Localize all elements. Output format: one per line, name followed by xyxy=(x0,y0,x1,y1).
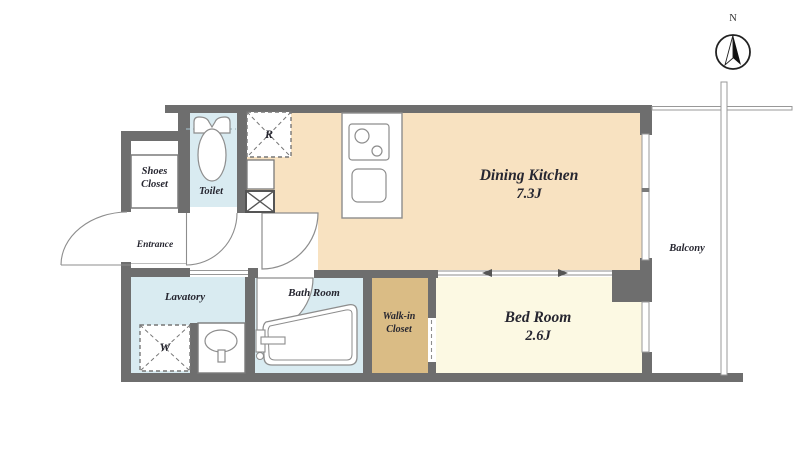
dining-kitchen-label: Dining Kitchen 7.3J xyxy=(429,166,629,204)
wall-corner-block-a xyxy=(640,258,652,302)
kitchen-sink xyxy=(352,169,386,202)
wall-left-upper xyxy=(121,131,131,212)
shoes-closet-label: Shoes Closet xyxy=(131,165,178,191)
wall-corner-block-b xyxy=(612,270,640,302)
basin-tap xyxy=(218,350,225,362)
toilet-label: Toilet xyxy=(185,186,237,199)
bed-room-name: Bed Room xyxy=(448,308,628,327)
wall-bedroom-right-stub xyxy=(642,352,652,373)
windows xyxy=(642,82,793,375)
storage-counter-box xyxy=(247,160,274,189)
wall-dk-right-stub xyxy=(640,105,652,135)
sliding-arrow-left xyxy=(482,269,492,277)
lavatory-opening xyxy=(190,268,248,277)
dk-door-swing xyxy=(262,213,318,269)
bath-room-label: Bath Room xyxy=(262,287,366,300)
wall-wic-bedroom-upper xyxy=(428,277,436,318)
window-mullion xyxy=(642,188,650,192)
bath-drain xyxy=(257,353,264,360)
dining-kitchen-size: 7.3J xyxy=(429,185,629,204)
floor-plan-drawing xyxy=(0,0,800,451)
sliding-door-track xyxy=(438,269,612,277)
walk-in-closet-line2: Closet xyxy=(370,323,428,336)
kitchen xyxy=(342,113,402,218)
stove xyxy=(349,124,389,160)
washer-marker: W xyxy=(140,340,190,354)
lavatory-opening-gap xyxy=(190,268,248,277)
sliding-arrow-right xyxy=(558,269,568,277)
wall-left-lower xyxy=(121,262,131,373)
bed-room-label: Bed Room 2.6J xyxy=(448,308,628,346)
wall-wic-bedroom-lower xyxy=(428,362,436,373)
wall-basin-stub xyxy=(190,323,198,373)
balcony-railing xyxy=(721,82,727,375)
dk-balcony-window xyxy=(642,134,649,260)
walk-in-closet-label: Walk-in Closet xyxy=(370,310,428,336)
balcony-label: Balcony xyxy=(650,243,724,256)
stove-burner xyxy=(355,129,369,143)
shoes-closet-line2: Closet xyxy=(131,178,178,191)
wall-bottom xyxy=(121,373,743,382)
shoes-closet-line1: Shoes xyxy=(131,165,178,178)
bath-faucet-bar xyxy=(261,337,285,344)
lavatory-basin xyxy=(198,323,245,373)
bedroom-balcony-window xyxy=(642,302,649,352)
floor-plan: Dining Kitchen 7.3J Bed Room 2.6J Toilet… xyxy=(0,0,800,451)
toilet-door-arc xyxy=(186,213,237,265)
refrigerator-marker: R xyxy=(247,127,291,141)
north-label: N xyxy=(723,13,743,26)
dining-kitchen-name: Dining Kitchen xyxy=(429,166,629,185)
bed-room-size: 2.6J xyxy=(448,327,628,346)
entrance-label: Entrance xyxy=(123,240,187,251)
stove-burner xyxy=(372,146,382,156)
toilet-bowl xyxy=(198,129,226,181)
walk-in-closet-line1: Walk-in xyxy=(370,310,428,323)
wall-hall-lavatory xyxy=(121,268,190,277)
basin-bowl xyxy=(205,330,237,352)
entrance-door-arc xyxy=(61,212,127,265)
lavatory-label: Lavatory xyxy=(133,291,237,304)
wall-lavatory-bath-divider xyxy=(245,277,255,373)
wall-bath-wic-top xyxy=(314,270,438,278)
north-compass xyxy=(716,35,750,69)
